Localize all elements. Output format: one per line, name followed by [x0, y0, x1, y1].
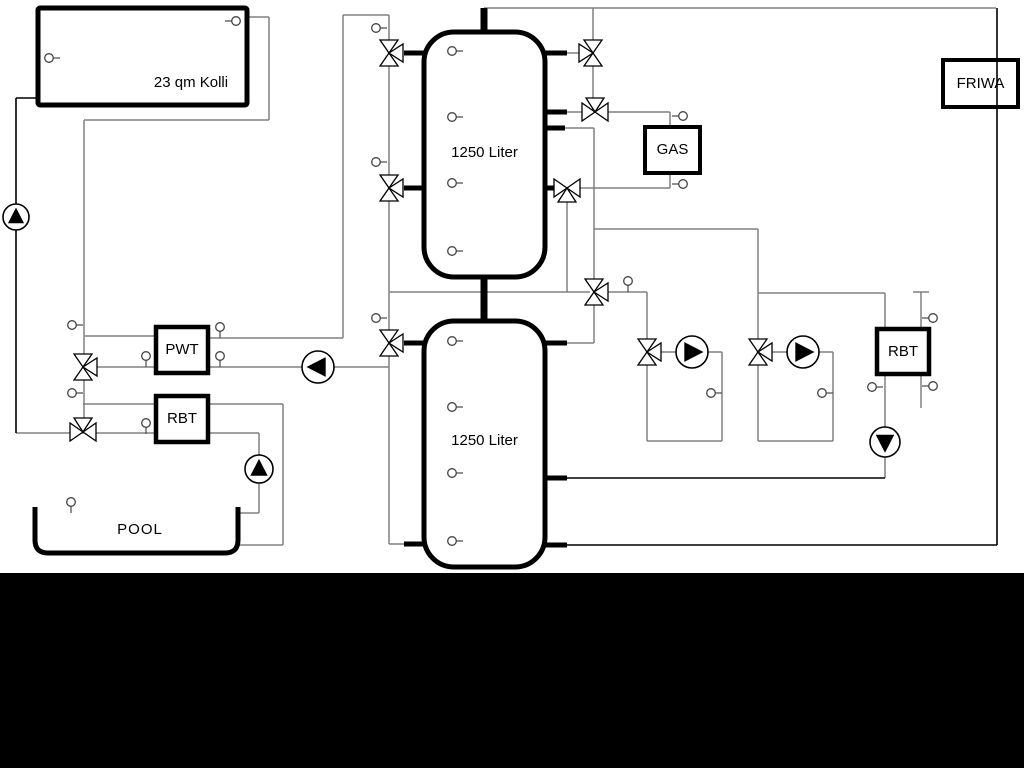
temperature-sensor-icon: [929, 314, 938, 323]
temperature-sensor-icon: [679, 112, 688, 121]
temperature-sensor-icon: [372, 24, 381, 33]
temperature-sensor-icon: [929, 382, 938, 391]
pool-basin: [35, 507, 238, 553]
temperature-sensor-icon: [448, 337, 457, 346]
temperature-sensor-icon: [372, 314, 381, 323]
gas-boiler-box: [645, 127, 700, 173]
temperature-sensor-icon: [68, 321, 77, 330]
temperature-sensor-icon: [142, 419, 151, 428]
temperature-sensor-icon: [67, 498, 76, 507]
rbt-right-box: [877, 329, 929, 374]
temperature-sensor-icon: [679, 180, 688, 189]
temperature-sensor-icon: [216, 352, 225, 361]
friwa-box: [943, 60, 1018, 107]
temperature-sensor-icon: [232, 17, 241, 26]
footer-bar: [0, 573, 1024, 768]
temperature-sensor-icon: [448, 469, 457, 478]
collector-box: [38, 8, 247, 105]
pwt-box: [156, 327, 208, 373]
temperature-sensor-icon: [448, 537, 457, 546]
temperature-sensor-icon: [45, 54, 54, 63]
temperature-sensor-icon: [448, 403, 457, 412]
temperature-sensor-icon: [448, 47, 457, 56]
temperature-sensor-icon: [707, 389, 716, 398]
tank-bottom: [424, 321, 545, 567]
temperature-sensor-icon: [624, 277, 633, 286]
temperature-sensor-icon: [818, 389, 827, 398]
tank-top: [424, 32, 545, 277]
temperature-sensor-icon: [216, 323, 225, 332]
schematic-page: 23 qm Kolli 1250 Liter 1250 Liter GAS FR…: [0, 0, 1024, 768]
temperature-sensor-icon: [68, 389, 77, 398]
temperature-sensor-icon: [448, 247, 457, 256]
temperature-sensor-icon: [142, 352, 151, 361]
piping-schematic-canvas: [0, 0, 1024, 768]
rbt-left-box: [156, 396, 208, 442]
temperature-sensor-icon: [372, 158, 381, 167]
temperature-sensor-icon: [448, 113, 457, 122]
temperature-sensor-icon: [448, 179, 457, 188]
temperature-sensor-icon: [868, 383, 877, 392]
